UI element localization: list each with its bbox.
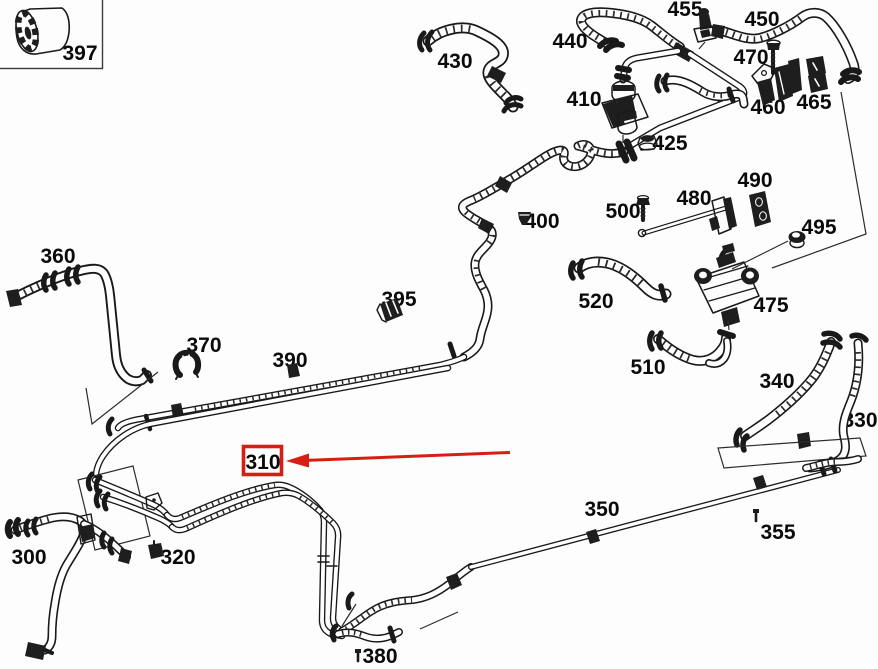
svg-text:480: 480 <box>676 187 711 210</box>
svg-text:475: 475 <box>753 294 788 317</box>
svg-text:350: 350 <box>584 498 619 521</box>
svg-text:380: 380 <box>362 645 397 664</box>
svg-text:300: 300 <box>11 546 46 569</box>
svg-text:520: 520 <box>578 290 613 313</box>
svg-text:355: 355 <box>760 521 795 544</box>
svg-text:360: 360 <box>40 245 75 268</box>
svg-text:455: 455 <box>667 0 702 21</box>
svg-text:397: 397 <box>62 42 97 65</box>
svg-text:490: 490 <box>737 169 772 192</box>
svg-text:430: 430 <box>437 50 472 73</box>
svg-text:320: 320 <box>160 546 195 569</box>
svg-text:310: 310 <box>245 451 280 474</box>
svg-text:500: 500 <box>605 200 640 223</box>
svg-text:440: 440 <box>552 30 587 53</box>
svg-text:510: 510 <box>630 356 665 379</box>
svg-text:465: 465 <box>796 91 831 114</box>
svg-text:410: 410 <box>566 88 601 111</box>
svg-text:425: 425 <box>652 132 687 155</box>
svg-text:495: 495 <box>801 216 836 239</box>
svg-text:340: 340 <box>759 370 794 393</box>
